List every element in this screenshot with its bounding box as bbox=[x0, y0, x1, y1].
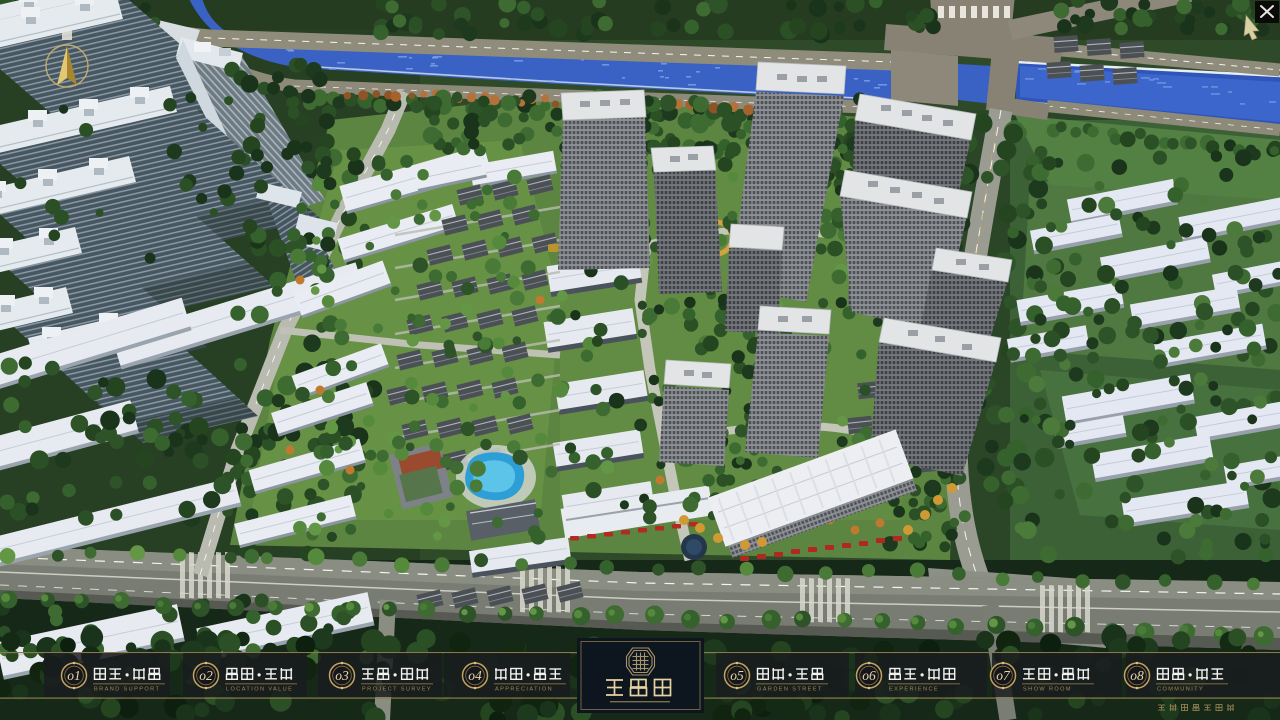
svg-text:o5: o5 bbox=[730, 668, 744, 683]
svg-text:o7: o7 bbox=[996, 668, 1011, 683]
svg-text:APPRECIATION: APPRECIATION bbox=[495, 686, 553, 692]
svg-text:o2: o2 bbox=[199, 668, 213, 683]
svg-text:PROJECT SURVEY: PROJECT SURVEY bbox=[362, 686, 432, 692]
svg-text:GARDEN STREET: GARDEN STREET bbox=[757, 686, 823, 692]
svg-text:BRAND SUPPORT: BRAND SUPPORT bbox=[94, 686, 160, 692]
svg-text:o3: o3 bbox=[335, 668, 349, 683]
svg-text:LOCATION VALUE: LOCATION VALUE bbox=[226, 686, 293, 692]
svg-text:o6: o6 bbox=[862, 668, 876, 683]
svg-text:o1: o1 bbox=[67, 668, 81, 683]
svg-text:o8: o8 bbox=[1130, 668, 1144, 683]
svg-text:SHOW ROOM: SHOW ROOM bbox=[1023, 686, 1072, 692]
svg-text:COMMUNITY: COMMUNITY bbox=[1157, 686, 1204, 692]
svg-text:EXPERIENCE: EXPERIENCE bbox=[889, 686, 939, 692]
svg-text:o4: o4 bbox=[468, 668, 482, 683]
